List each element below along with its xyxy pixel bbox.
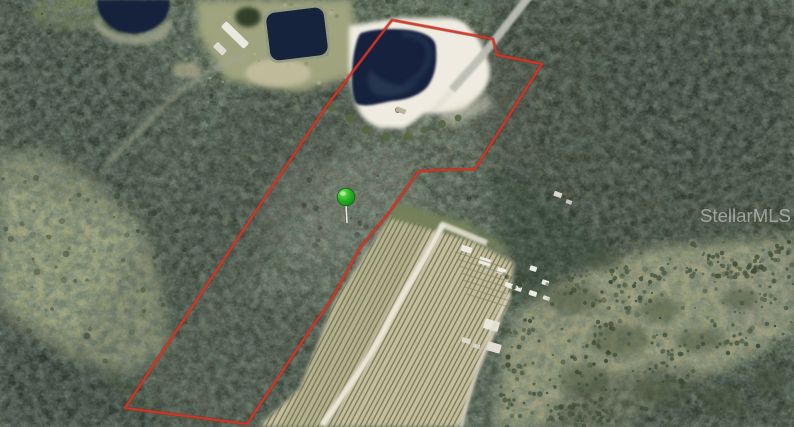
svg-text:StellarMLS: StellarMLS	[700, 205, 791, 226]
